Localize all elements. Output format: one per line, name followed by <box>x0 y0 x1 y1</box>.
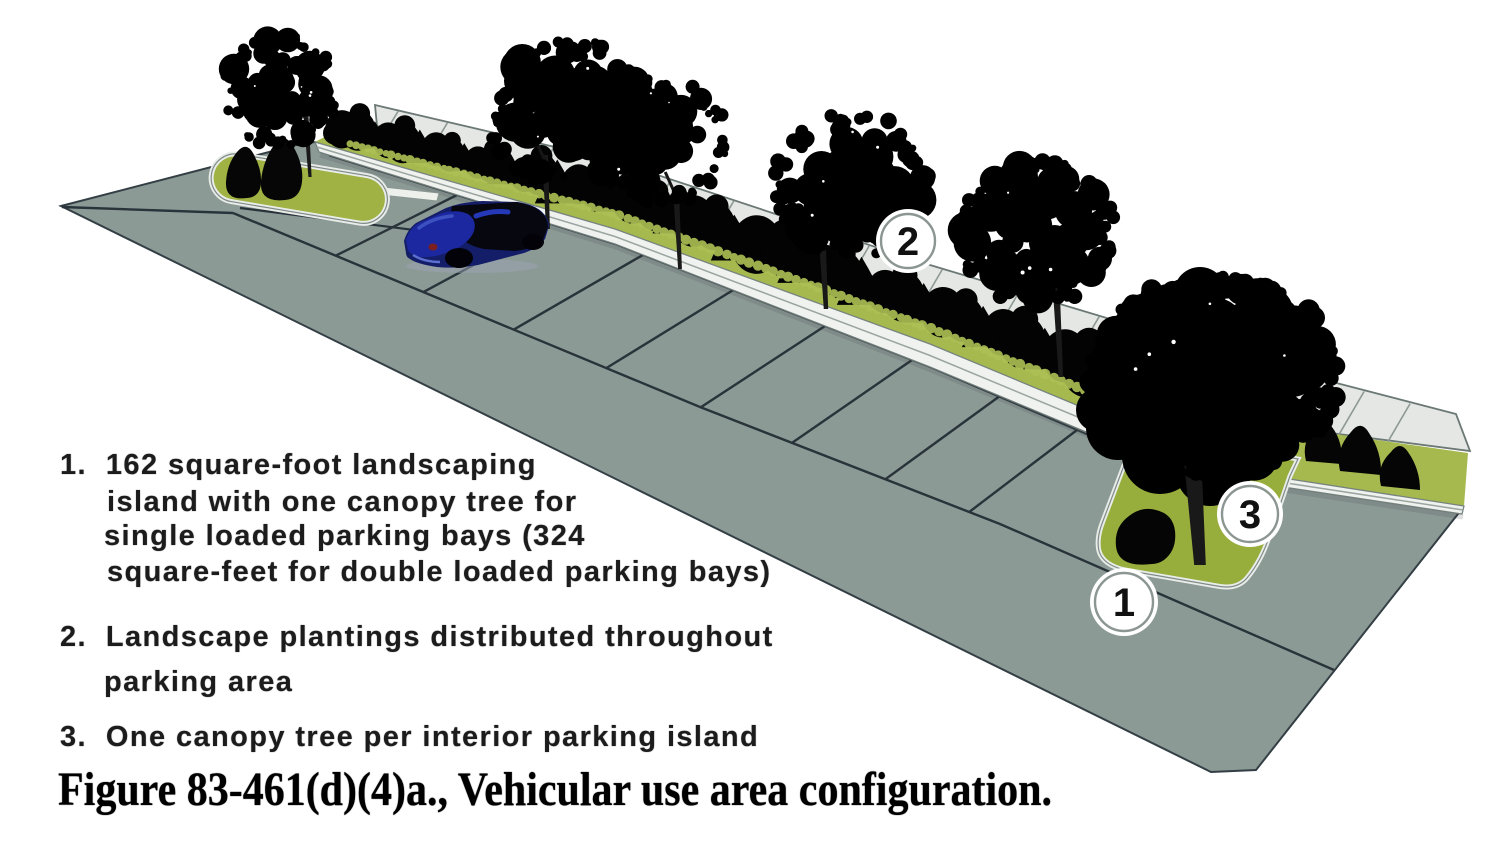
svg-text:2: 2 <box>897 220 919 264</box>
svg-text:3: 3 <box>1239 493 1261 537</box>
svg-text:1: 1 <box>1113 581 1135 625</box>
